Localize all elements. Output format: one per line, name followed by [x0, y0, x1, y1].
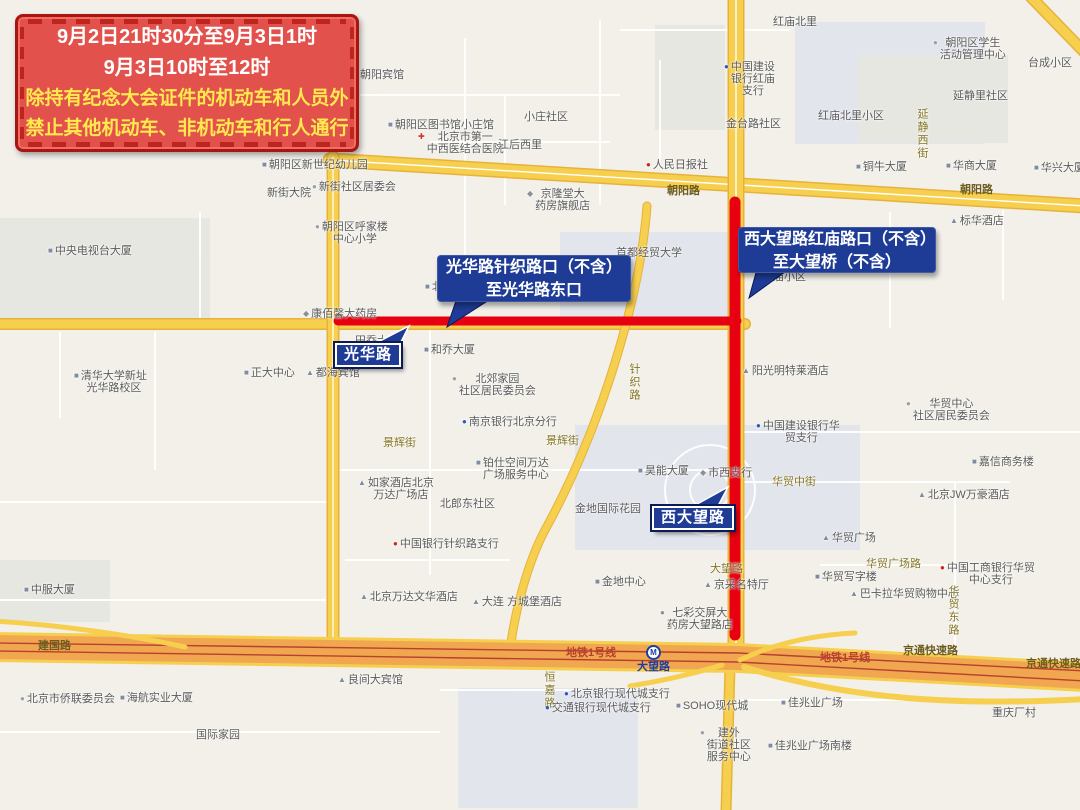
label-text: 华商大厦 [953, 160, 997, 172]
poi-label: ■昊能大厦 [638, 465, 689, 477]
poi-label: ■华兴大厦 [1034, 162, 1080, 174]
label-text: 华贸东路 [947, 585, 959, 637]
poi-label: ◆康佰馨大药房 [303, 308, 377, 320]
bank-blue-icon: ● [545, 702, 550, 713]
label-text: 海航实业大厦 [127, 692, 193, 704]
poi-label: 红庙北里 [773, 16, 817, 28]
hotel-icon: ▲ [822, 532, 830, 543]
label-text: 延静西街 [916, 108, 928, 160]
label-text: 朝阳区图书馆小庄馆 [395, 119, 494, 131]
building-icon: ■ [1034, 162, 1039, 173]
label-text: 中国建设银行红庙支行 [731, 61, 775, 97]
building-icon: ■ [262, 159, 267, 170]
poi-label: ▲大连 方城堡酒店 [472, 596, 562, 608]
building-icon: ■ [676, 700, 681, 711]
poi-label: ▲都海宾馆 [306, 367, 360, 379]
dot-icon: ● [312, 181, 317, 192]
label-text: 京通快速路 [1026, 658, 1080, 670]
label-text: 巴卡拉华贸购物中心 [860, 588, 959, 600]
poi-label: ▲华贸广场 [822, 532, 876, 544]
label-text: 中国建设银行华贸支行 [763, 420, 840, 444]
poi-label: ■和乔大厦 [424, 344, 475, 356]
hotel-icon: ▲ [358, 477, 366, 488]
label-text: 地铁1号线 [820, 652, 870, 664]
shop-icon: ◆ [700, 467, 706, 478]
metro-station-dawanglu: M 大望路 [637, 645, 670, 673]
poi-label: ●新街社区居委会 [312, 181, 396, 193]
label-text: 金地中心 [602, 576, 646, 588]
label-text: 京通快速路 [903, 645, 958, 657]
label-text: 佳兆业广场 [788, 697, 843, 709]
hotel-icon: ▲ [950, 215, 958, 226]
label-text: 江后西里 [498, 139, 542, 151]
bank-blue-icon: ● [462, 416, 467, 427]
label-text: SOHO现代城 [683, 700, 748, 712]
poi-label: ◆市西支行 [700, 467, 752, 479]
label-text: 铂仕空间万达广场服务中心 [483, 457, 549, 481]
banner-rule-line-2: 禁止其他机动车、非机动车和行人通行 [18, 114, 356, 144]
label-text: 大连 方城堡酒店 [482, 596, 562, 608]
label-text: 延静里社区 [953, 90, 1008, 102]
label-text: 朝阳宾馆 [360, 69, 404, 81]
poi-label: ●人民日报社 [646, 159, 708, 171]
building-icon: ■ [425, 281, 430, 292]
building-icon: ■ [388, 119, 393, 130]
label-text: 北京市侨联委员会 [27, 693, 115, 705]
road-tag-label: 西大望路 [661, 508, 725, 528]
hotel-icon: ▲ [306, 367, 314, 378]
poi-label: 延静里社区 [953, 90, 1008, 102]
road-name-label: 京通快速路 [903, 645, 958, 657]
road-name-label: 朝阳路 [667, 185, 700, 197]
building-icon: ■ [476, 457, 481, 468]
building-icon: ■ [24, 584, 29, 595]
restriction-notice-banner: 9月2日21时30分至9月3日1时 9月3日10时至12时 除持有纪念大会证件的… [15, 14, 359, 152]
label-text: 都海宾馆 [316, 367, 360, 379]
label-text: 华贸广场 [832, 532, 876, 544]
building-icon: ■ [815, 571, 820, 582]
street-name-label: 针织路 [628, 363, 640, 402]
label-text: 小庄社区 [524, 111, 568, 123]
label-text: 台成小区 [1028, 57, 1072, 69]
road-tag-guanghualu: 光华路 [335, 343, 401, 367]
label-text: 京采名特厅 [714, 579, 769, 591]
poi-label: ●北京市侨联委员会 [20, 693, 115, 705]
poi-label: 金地国际花园 [575, 503, 641, 515]
banner-time-line-1: 9月2日21时30分至9月3日1时 [18, 22, 356, 53]
street-name-label: 华贸广场路 [866, 558, 921, 570]
poi-label: ●七彩交屏大药房大望路店 [660, 607, 733, 631]
label-text: 金地国际花园 [575, 503, 641, 515]
callout-line2: 至大望桥（不含） [744, 251, 930, 274]
label-text: 建外街道社区服务中心 [707, 727, 751, 763]
poi-label: ■铂仕空间万达广场服务中心 [476, 457, 549, 481]
label-text: 市西支行 [708, 467, 752, 479]
label-text: 新街社区居委会 [319, 181, 396, 193]
label-text: 华兴大厦 [1041, 162, 1080, 174]
poi-label: 金台路社区 [726, 118, 781, 130]
label-text: 北郎东社区 [440, 498, 495, 510]
label-text: 朝阳区学生活动管理中心 [940, 37, 1006, 61]
street-name-label: 延静西街 [916, 108, 928, 160]
label-text: 红庙北里 [773, 16, 817, 28]
label-text: 昊能大厦 [645, 465, 689, 477]
shop-icon: ◆ [303, 308, 309, 319]
poi-label: ●北郊家园社区居民委员会 [452, 373, 536, 397]
poi-label: ■海航实业大厦 [120, 692, 193, 704]
road-tag-xidawanglu: 西大望路 [652, 506, 734, 530]
label-text: 景辉街 [546, 435, 579, 447]
hotel-icon: ▲ [918, 489, 926, 500]
building-icon: ■ [48, 245, 53, 256]
dot-icon: ● [906, 398, 911, 409]
dot-icon: ● [933, 37, 938, 48]
label-text: 康佰馨大药房 [311, 308, 377, 320]
label-text: 华贸中街 [772, 476, 816, 488]
dot-icon: ● [700, 727, 705, 738]
banner-time-line-2: 9月3日10时至12时 [18, 53, 356, 84]
bank-blue-icon: ● [756, 420, 761, 431]
label-text: 北京JW万豪酒店 [928, 489, 1010, 501]
poi-label: ■朝阳区新世纪幼儿园 [262, 159, 368, 171]
poi-label: ▲北京万达文华酒店 [360, 591, 458, 603]
label-text: 交通银行现代城支行 [552, 702, 651, 714]
street-name-label: 大望路 [710, 563, 743, 575]
road-name-label: 京通快速路 [1026, 658, 1080, 670]
label-text: 京隆堂大药房旗舰店 [535, 188, 590, 212]
poi-label: 江后西里 [498, 139, 542, 151]
label-text: 标华酒店 [960, 215, 1004, 227]
poi-label: ▲良间大宾馆 [338, 674, 403, 686]
building-icon: ■ [120, 692, 125, 703]
building-icon: ■ [74, 370, 79, 381]
poi-label: ●中国工商银行华贸中心支行 [940, 562, 1035, 586]
hotel-icon: ▲ [704, 579, 712, 590]
poi-label: 新街大院 [267, 187, 311, 199]
callout-line1: 西大望路红庙路口（不含） [744, 228, 930, 251]
label-text: 金台路社区 [726, 118, 781, 130]
bank-blue-icon: ● [564, 688, 569, 699]
label-text: 景辉街 [383, 437, 416, 449]
bank-red-icon: ● [393, 538, 398, 549]
poi-label: ●建外街道社区服务中心 [700, 727, 751, 763]
poi-label: 台成小区 [1028, 57, 1072, 69]
label-text: 清华大学新址光华路校区 [81, 370, 147, 394]
street-name-label: 景辉街 [383, 437, 416, 449]
road-name-label: 朝阳路 [960, 184, 993, 196]
metro-line-label: 地铁1号线 [566, 647, 616, 659]
poi-label: ▲标华酒店 [950, 215, 1004, 227]
label-text: 华贸中心社区居民委员会 [913, 398, 990, 422]
hotel-icon: ▲ [742, 365, 750, 376]
label-text: 南京银行北京分行 [469, 416, 557, 428]
metro-icon: M [646, 645, 661, 660]
poi-label: ■金地中心 [595, 576, 646, 588]
hotel-icon: ▲ [472, 596, 480, 607]
label-text: 大望路 [710, 563, 743, 575]
poi-label: ▲京采名特厅 [704, 579, 769, 591]
label-text: 中服大厦 [31, 584, 75, 596]
label-text: 铜牛大厦 [863, 161, 907, 173]
poi-label: ●朝阳区学生活动管理中心 [933, 37, 1006, 61]
bank-red-icon: ● [940, 562, 945, 573]
dot-icon: ● [20, 693, 25, 704]
label-text: 红庙北里小区 [818, 110, 884, 122]
building-icon: ■ [781, 697, 786, 708]
road-name-label: 建国路 [38, 640, 71, 652]
callout-xidawang-segment: 西大望路红庙路口（不含） 至大望桥（不含） [738, 227, 936, 273]
hotel-icon: ▲ [360, 591, 368, 602]
poi-label: ●中国银行针织路支行 [393, 538, 499, 550]
metro-line-label: 地铁1号线 [820, 652, 870, 664]
label-text: 阳光明特莱酒店 [752, 365, 829, 377]
poi-label: ■SOHO现代城 [676, 700, 748, 712]
label-text: 如家酒店北京万达广场店 [368, 477, 434, 501]
building-icon: ■ [595, 576, 600, 587]
hotel-icon: ▲ [338, 674, 346, 685]
poi-label: 小庄社区 [524, 111, 568, 123]
traffic-restriction-map: 朝阳宾馆■朝阳区图书馆小庄馆✚北京市第一中西医结合医院小庄社区江后西里●人民日报… [0, 0, 1080, 810]
hospital-icon: ✚ [418, 131, 425, 142]
poi-label: ■嘉信商务楼 [972, 456, 1034, 468]
label-text: 人民日报社 [653, 159, 708, 171]
label-text: 针织路 [628, 363, 640, 402]
poi-label: 红庙北里小区 [818, 110, 884, 122]
label-text: 北京市第一中西医结合医院 [427, 131, 504, 155]
label-text: 良间大宾馆 [348, 674, 403, 686]
label-text: 华贸广场路 [866, 558, 921, 570]
callout-line1: 光华路针织路口（不含） [443, 256, 625, 279]
building-icon: ■ [638, 465, 643, 476]
poi-label: ■中服大厦 [24, 584, 75, 596]
info-icon: ● [660, 607, 665, 618]
poi-label: 国际家园 [196, 729, 240, 741]
poi-label: 朝阳宾馆 [360, 69, 404, 81]
dot-icon: ● [315, 221, 320, 232]
label-text: 北京银行现代城支行 [571, 688, 670, 700]
label-text: 七彩交屏大药房大望路店 [667, 607, 733, 631]
street-name-label: 华贸东路 [947, 585, 959, 637]
building-icon: ■ [424, 344, 429, 355]
poi-label: ●华贸中心社区居民委员会 [906, 398, 990, 422]
building-icon: ■ [768, 740, 773, 751]
poi-label: 重庆厂村 [992, 707, 1036, 719]
label-text: 中国银行针织路支行 [400, 538, 499, 550]
building-icon: ■ [946, 160, 951, 171]
poi-label: ●南京银行北京分行 [462, 416, 557, 428]
poi-label: ●北京银行现代城支行 [564, 688, 670, 700]
poi-label: ▲巴卡拉华贸购物中心 [850, 588, 959, 600]
label-text: 国际家园 [196, 729, 240, 741]
label-text: 中央电视台大厦 [55, 245, 132, 257]
poi-label: ●交通银行现代城支行 [545, 702, 651, 714]
building-icon: ■ [244, 367, 249, 378]
label-text: 嘉信商务楼 [979, 456, 1034, 468]
label-text: 和乔大厦 [431, 344, 475, 356]
poi-label: ●中国建设银行华贸支行 [756, 420, 840, 444]
label-text: 重庆厂村 [992, 707, 1036, 719]
bank-red-icon: ● [646, 159, 651, 170]
label-text: 朝阳路 [960, 184, 993, 196]
poi-label: ■铜牛大厦 [856, 161, 907, 173]
poi-label: ●朝阳区呼家楼中心小学 [315, 221, 388, 245]
metro-station-name: 大望路 [637, 661, 670, 673]
poi-label: ■清华大学新址光华路校区 [74, 370, 147, 394]
poi-label: 北郎东社区 [440, 498, 495, 510]
poi-label: ■佳兆业广场 [781, 697, 843, 709]
bank-blue-icon: ● [724, 61, 729, 72]
building-icon: ■ [972, 456, 977, 467]
poi-label: ■中央电视台大厦 [48, 245, 132, 257]
street-name-label: 华贸中街 [772, 476, 816, 488]
label-text: 地铁1号线 [566, 647, 616, 659]
poi-label: ■正大中心 [244, 367, 295, 379]
poi-label: ■华商大厦 [946, 160, 997, 172]
hotel-icon: ▲ [850, 588, 858, 599]
poi-label: ▲北京JW万豪酒店 [918, 489, 1010, 501]
poi-label: ●中国建设银行红庙支行 [724, 61, 775, 97]
poi-label: ✚北京市第一中西医结合医院 [418, 131, 504, 155]
label-text: 中国工商银行华贸中心支行 [947, 562, 1035, 586]
label-text: 北京万达文华酒店 [370, 591, 458, 603]
label-text: 新街大院 [267, 187, 311, 199]
label-text: 朝阳路 [667, 185, 700, 197]
callout-line2: 至光华路东口 [443, 279, 625, 302]
poi-label: ■朝阳区图书馆小庄馆 [388, 119, 494, 131]
label-text: 建国路 [38, 640, 71, 652]
label-text: 正大中心 [251, 367, 295, 379]
road-tag-label: 光华路 [344, 345, 392, 365]
poi-label: ▲阳光明特莱酒店 [742, 365, 829, 377]
banner-rule-line-1: 除持有纪念大会证件的机动车和人员外 [18, 84, 356, 114]
poi-label: ■佳兆业广场南楼 [768, 740, 852, 752]
shop-icon: ◆ [527, 188, 533, 199]
label-text: 佳兆业广场南楼 [775, 740, 852, 752]
label-text: 北郊家园社区居民委员会 [459, 373, 536, 397]
poi-label: ▲如家酒店北京万达广场店 [358, 477, 434, 501]
poi-label: ◆京隆堂大药房旗舰店 [527, 188, 590, 212]
label-text: 华贸写字楼 [822, 571, 877, 583]
dot-icon: ● [452, 373, 457, 384]
street-name-label: 景辉街 [546, 435, 579, 447]
poi-label: ■华贸写字楼 [815, 571, 877, 583]
label-text: 朝阳区呼家楼中心小学 [322, 221, 388, 245]
building-icon: ■ [856, 161, 861, 172]
label-text: 朝阳区新世纪幼儿园 [269, 159, 368, 171]
callout-guanghua-segment: 光华路针织路口（不含） 至光华路东口 [437, 255, 631, 302]
